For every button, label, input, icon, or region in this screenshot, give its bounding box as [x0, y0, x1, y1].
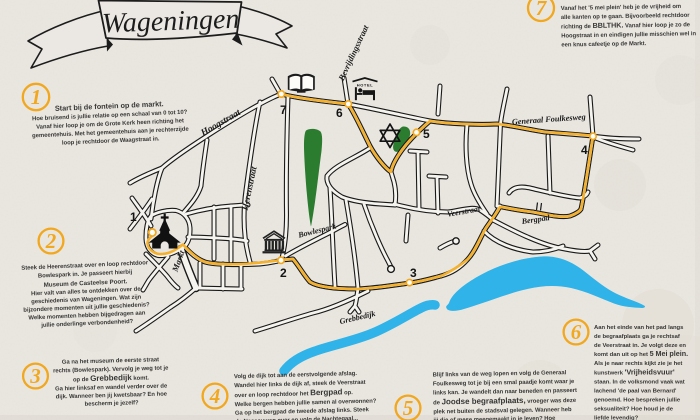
svg-text:Als je naar rechts kijkt zie j: Als je naar rechts kijkt zie je het [594, 361, 682, 367]
svg-text:liefde levendig?: liefde levendig? [594, 416, 639, 420]
svg-text:7: 7 [280, 103, 287, 117]
svg-text:3: 3 [29, 364, 41, 388]
svg-text:6: 6 [571, 320, 582, 344]
svg-text:staan. In de volksmond vaak wa: staan. In de volksmond vaak wat [594, 380, 685, 386]
svg-text:Aan het einde van het pad lang: Aan het einde van het pad langs [594, 325, 684, 331]
svg-text:Wageningen: Wageningen [102, 4, 240, 40]
svg-text:2: 2 [45, 229, 57, 253]
svg-text:3: 3 [410, 266, 417, 280]
svg-text:1: 1 [31, 85, 42, 109]
svg-text:seksualiteit? Hoe houd je de: seksualiteit? Hoe houd je de [594, 407, 674, 413]
svg-text:7: 7 [536, 0, 548, 20]
svg-text:2: 2 [280, 266, 287, 280]
svg-text:genoemd. Hoe bespreken jullie: genoemd. Hoe bespreken jullie [594, 398, 681, 404]
svg-text:4: 4 [581, 143, 588, 157]
svg-text:6: 6 [336, 106, 343, 120]
svg-text:5: 5 [423, 127, 430, 141]
svg-text:lachend 'de paal van Bernard': lachend 'de paal van Bernard' [594, 389, 677, 395]
svg-text:1: 1 [130, 210, 137, 224]
svg-text:de begraafplaats ga je rechtsa: de begraafplaats ga je rechtsaf [594, 334, 680, 340]
svg-text:HOTEL: HOTEL [357, 82, 374, 87]
svg-text:5: 5 [403, 396, 414, 420]
svg-text:4: 4 [209, 384, 221, 408]
